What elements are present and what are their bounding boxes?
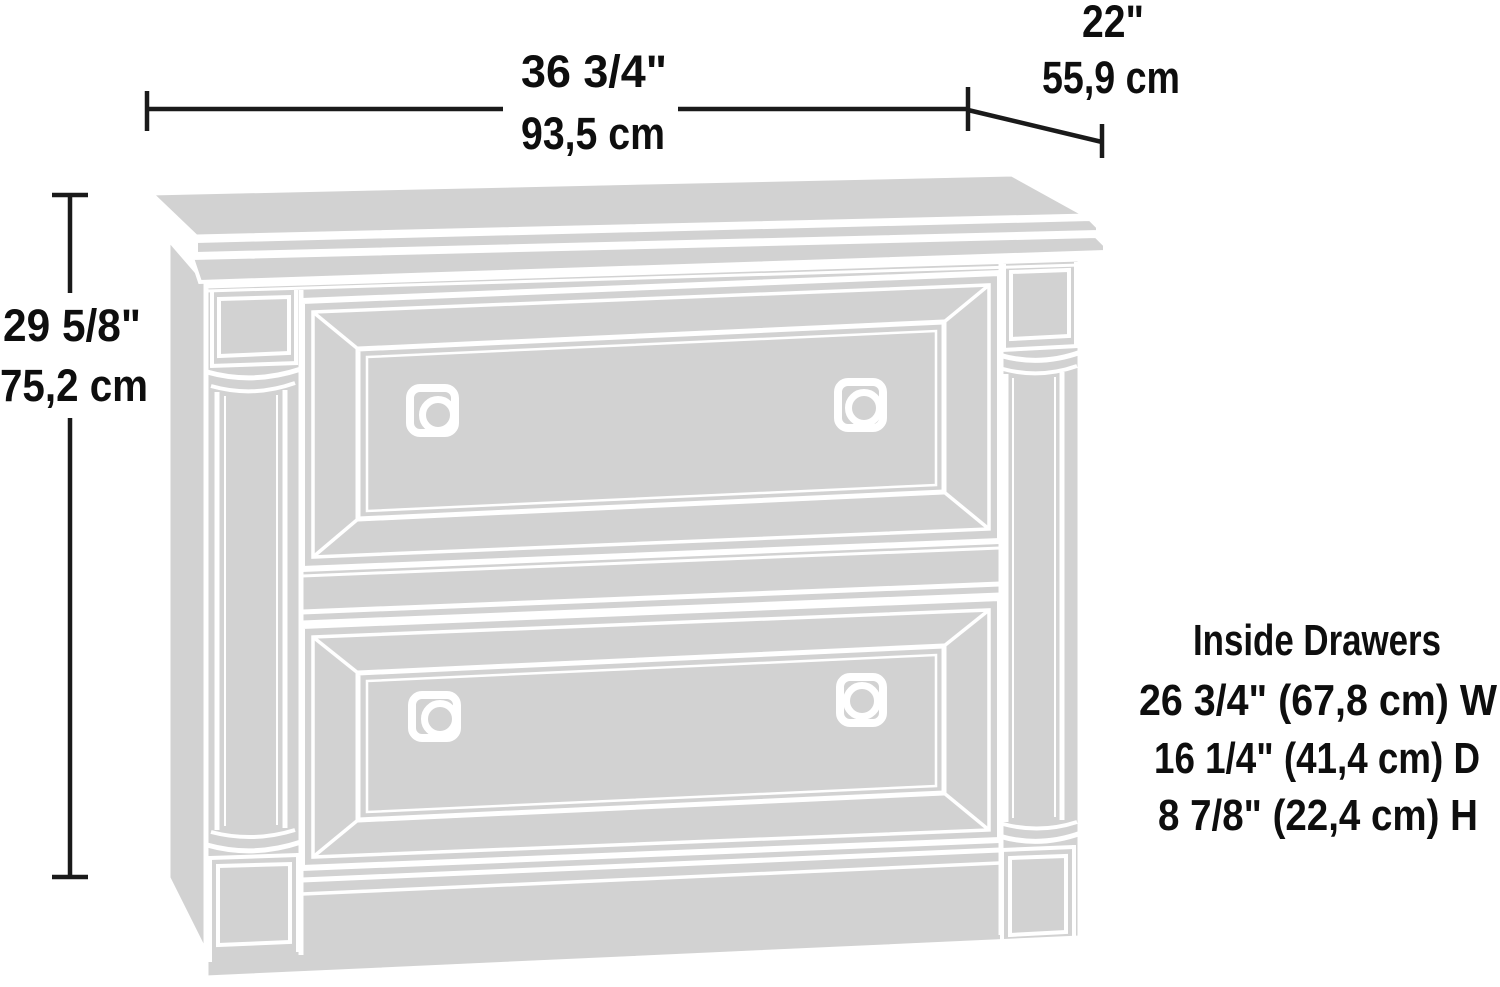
dimension-diagram: 36 3/4" 93,5 cm 22" 55,9 cm 29 5/8" 75,2… (0, 0, 1500, 987)
inside-drawers-title: Inside Drawers (1193, 616, 1441, 665)
inside-drawers-width-line: 26 3/4" (67,8 cm) W (1139, 676, 1497, 725)
depth-metric-label: 55,9 cm (1042, 52, 1180, 103)
height-metric-label: 75,2 cm (0, 360, 148, 411)
width-metric-label: 93,5 cm (521, 108, 665, 159)
depth-dimension: 22" 55,9 cm (968, 0, 1180, 158)
depth-dimension-line (968, 110, 1102, 158)
inside-drawers-note: Inside Drawers 26 3/4" (67,8 cm) W 16 1/… (1139, 616, 1497, 840)
cabinet-front-face (206, 259, 1080, 978)
inside-drawers-height-line: 8 7/8" (22,4 cm) H (1158, 791, 1478, 840)
depth-imperial-label: 22" (1082, 0, 1144, 47)
height-imperial-label: 29 5/8" (3, 300, 141, 351)
width-dimension: 36 3/4" 93,5 cm (147, 46, 968, 159)
cabinet-illustration (150, 174, 1105, 978)
height-dimension-line (52, 195, 88, 877)
height-dimension: 29 5/8" 75,2 cm (0, 195, 148, 877)
width-imperial-label: 36 3/4" (521, 46, 667, 97)
inside-drawers-depth-line: 16 1/4" (41,4 cm) D (1154, 734, 1480, 783)
